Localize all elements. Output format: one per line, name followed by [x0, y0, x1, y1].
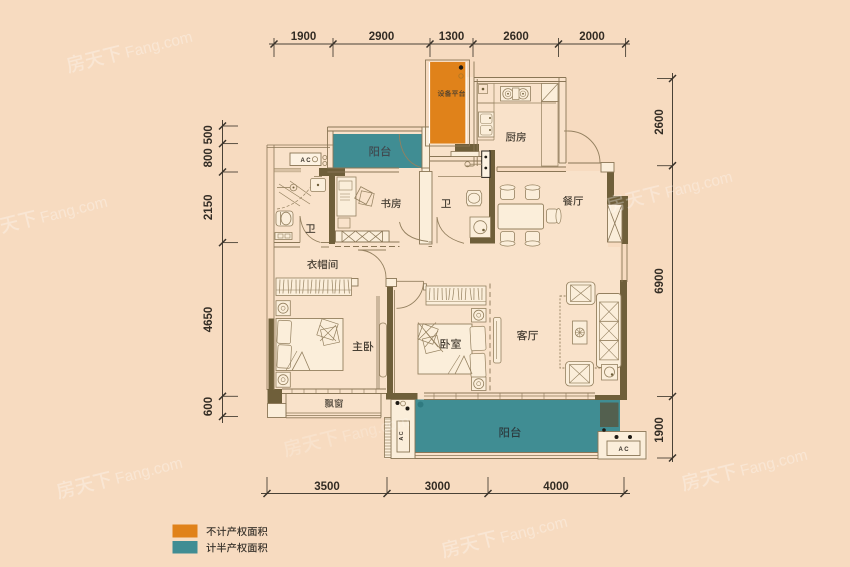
svg-text:600: 600 [203, 397, 215, 416]
svg-text:3000: 3000 [425, 481, 451, 493]
svg-text:4650: 4650 [203, 307, 215, 333]
svg-text:1900: 1900 [654, 417, 666, 443]
svg-text:2600: 2600 [654, 109, 666, 135]
svg-text:1900: 1900 [291, 31, 317, 43]
svg-text:2150: 2150 [203, 195, 215, 221]
svg-text:6900: 6900 [654, 268, 666, 294]
svg-text:4000: 4000 [543, 481, 569, 493]
svg-text:800: 800 [203, 148, 215, 167]
svg-text:2600: 2600 [503, 31, 529, 43]
svg-text:2000: 2000 [579, 31, 605, 43]
svg-text:A C: A C [300, 158, 311, 164]
svg-text:3500: 3500 [314, 481, 340, 493]
svg-text:A C: A C [618, 447, 629, 453]
svg-text:2900: 2900 [369, 31, 395, 43]
svg-text:500: 500 [203, 125, 215, 144]
svg-text:A C: A C [399, 431, 405, 440]
svg-text:1300: 1300 [439, 31, 465, 43]
